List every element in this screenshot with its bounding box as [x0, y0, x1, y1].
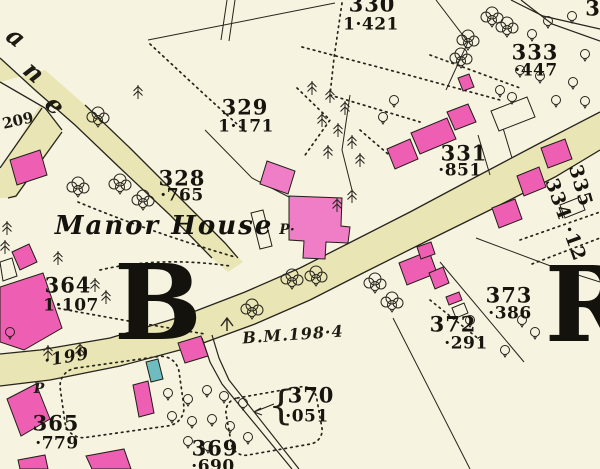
orchard-tree-icon [164, 389, 173, 401]
parcel-acreage-370: ·051 [285, 409, 328, 426]
corner-parcel-number: 3 [585, 0, 600, 19]
manor-house-label: Manor House [55, 213, 274, 239]
parcel-acreage-331: ·851 [438, 163, 481, 180]
parcel-acreage-369: ·690 [191, 459, 234, 469]
orchard-tree-icon [496, 86, 505, 98]
orchard-tree-icon [501, 346, 510, 358]
pump-label: P· [279, 223, 294, 237]
orchard-tree-icon [531, 328, 540, 340]
orchard-tree-icon [203, 386, 212, 398]
conifer-tree-icon [1, 240, 10, 254]
orchard-tree-icon [390, 96, 399, 108]
conifer-tree-icon [308, 81, 317, 95]
conifer-tree-icon [324, 145, 333, 159]
orchard-tree-icon [581, 97, 590, 109]
parcel-number-329: 329 [222, 97, 269, 118]
orchard-tree-icon [568, 12, 577, 24]
deciduous-tree-icon [457, 30, 479, 50]
building [446, 292, 462, 305]
conifer-tree-icon [348, 135, 357, 149]
orchard-tree-icon [226, 422, 235, 434]
orchard-tree-icon [220, 392, 229, 404]
conifer-tree-icon [54, 251, 63, 265]
deciduous-tree-icon [481, 7, 503, 27]
orchard-tree-icon [244, 433, 253, 445]
pump-label: P [34, 382, 45, 396]
deciduous-tree-icon [381, 292, 403, 312]
orchard-tree-icon [184, 395, 193, 407]
parcel-acreage-364: 1·107 [43, 298, 99, 315]
parcel-acreage-333: ·447 [514, 63, 557, 80]
orchard-tree-icon [544, 17, 553, 29]
parcel-number-370: 370 [288, 385, 335, 406]
conifer-tree-icon [91, 278, 100, 292]
deciduous-tree-icon [364, 273, 386, 293]
building [86, 449, 131, 469]
building [133, 381, 154, 417]
parcel-number-372: 372 [430, 314, 477, 335]
conifer-tree-icon [134, 85, 143, 99]
building [387, 139, 418, 169]
conifer-tree-icon [348, 189, 357, 203]
map-viewport[interactable]: a n e 209 330 1·421 333 ·447 329 1·171 3… [0, 0, 600, 469]
deciduous-tree-icon [496, 17, 518, 37]
parcel-number-333: 333 [512, 42, 559, 63]
building [18, 455, 48, 469]
conifer-tree-icon [326, 89, 335, 103]
parcel-acreage-328: ·765 [160, 188, 203, 205]
parcel-number-330: 330 [349, 0, 396, 15]
orchard-tree-icon [379, 113, 388, 125]
conifer-tree-icon [356, 153, 365, 167]
orchard-tree-icon [581, 50, 590, 62]
parcel-number-369: 369 [192, 438, 239, 459]
building-manor-north [260, 161, 295, 194]
parcel-acreage-365: ·779 [35, 436, 78, 453]
conifer-tree-icon [102, 290, 111, 304]
building [447, 104, 476, 130]
parcel-acreage-373: ·386 [488, 306, 531, 323]
conifer-tree-icon [334, 123, 343, 137]
parcel-acreage-329: 1·171 [218, 119, 274, 136]
parcel-acreage-372: ·291 [444, 336, 487, 353]
parcel-number-364: 364 [45, 275, 92, 296]
parcel-number-373: 373 [486, 285, 533, 306]
orchard-tree-icon [168, 412, 177, 424]
deciduous-tree-icon [109, 174, 131, 194]
conifer-tree-icon [318, 113, 327, 127]
parcel-acreage-330: 1·421 [343, 17, 399, 34]
grid-letter-b: B [114, 251, 202, 355]
outbuilding [0, 258, 17, 281]
orchard-tree-icon [208, 415, 217, 427]
deciduous-tree-icon [67, 177, 89, 197]
orchard-tree-icon [188, 417, 197, 429]
orchard-tree-icon [552, 96, 561, 108]
parcel-number-365: 365 [33, 413, 80, 434]
grid-letter-r: R [545, 253, 600, 357]
orchard-tree-icon [569, 78, 578, 90]
building [12, 244, 37, 270]
orchard-tree-icon [239, 399, 248, 411]
conifer-tree-icon [3, 221, 12, 235]
